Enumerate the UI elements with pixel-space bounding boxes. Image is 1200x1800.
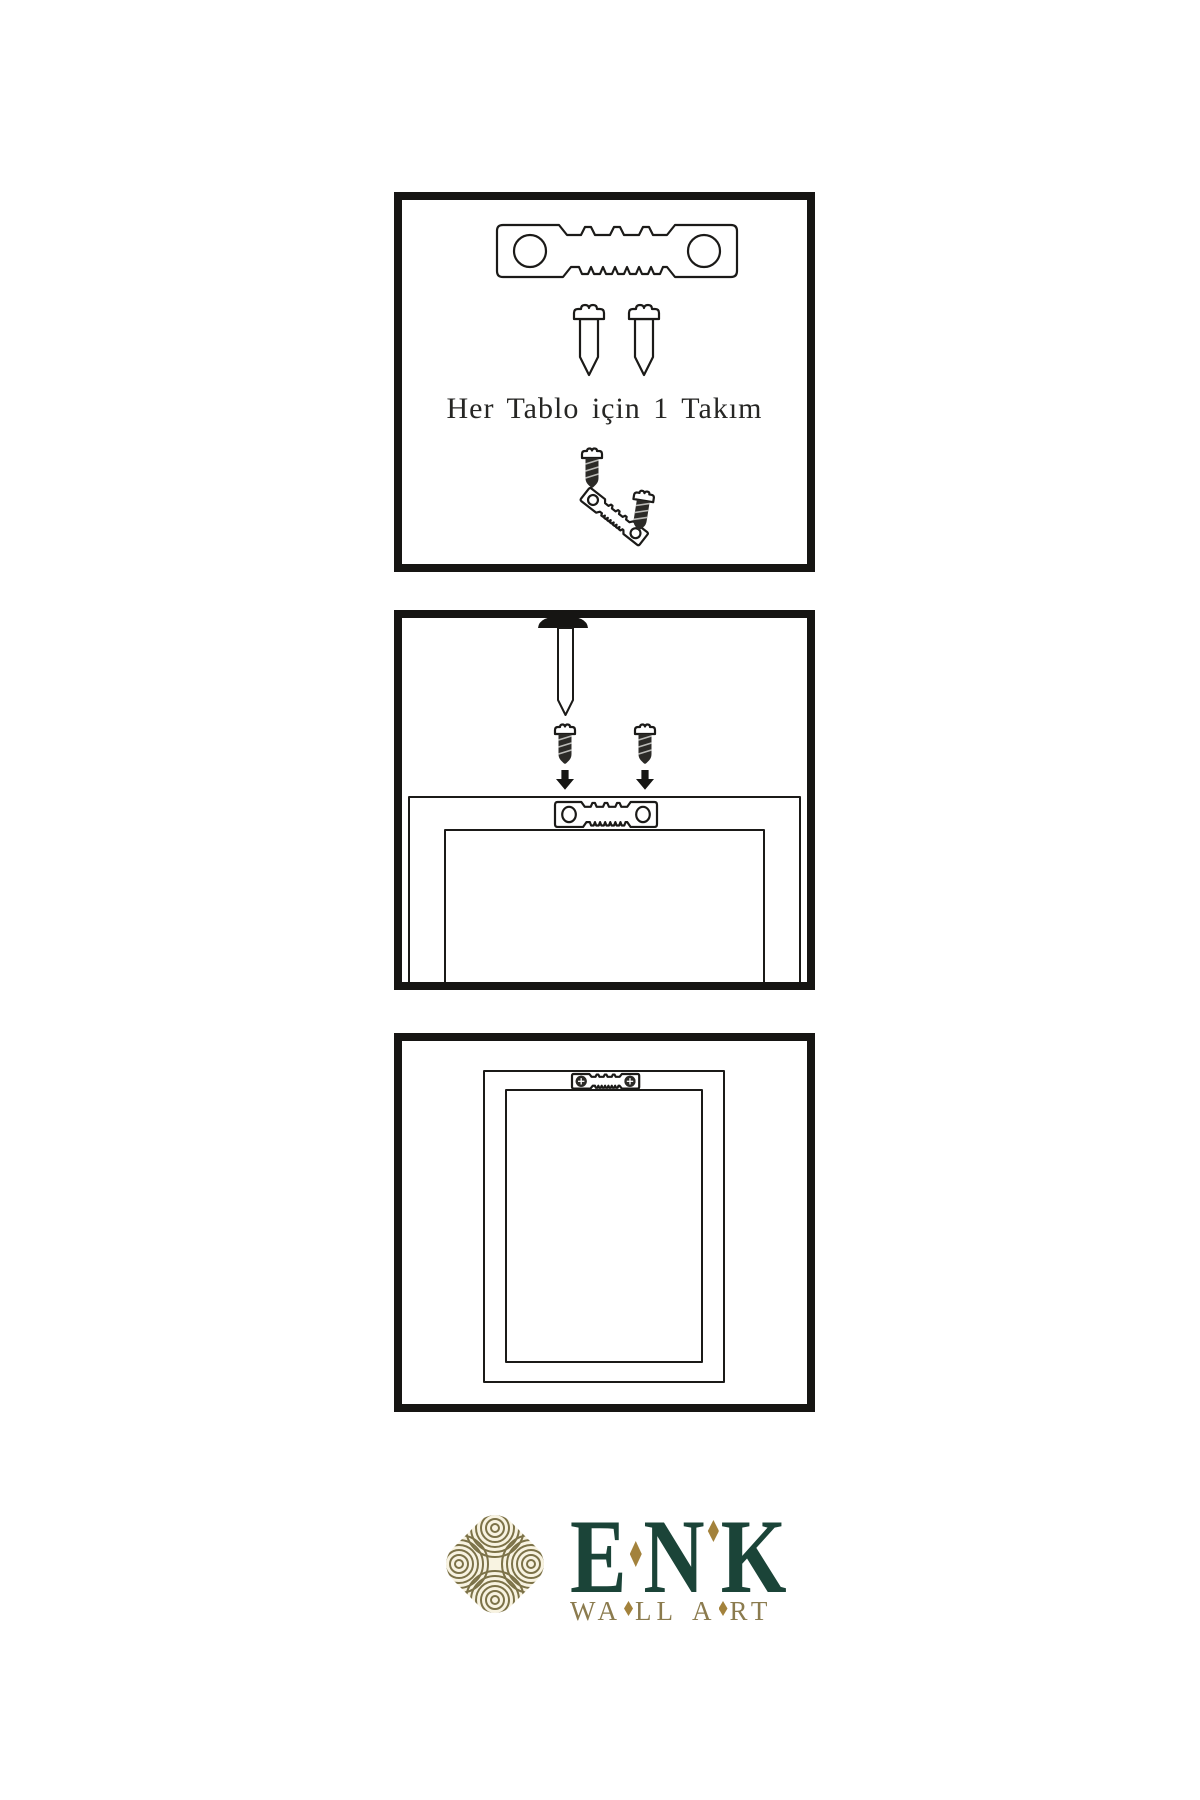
- sawtooth-hanger-icon: [555, 802, 657, 827]
- screw-icon: [574, 305, 604, 375]
- tagline-part: A: [692, 1596, 717, 1626]
- tagline-part: RT: [730, 1596, 773, 1626]
- panel1-caption: Her Tablo için 1 Takım: [394, 393, 815, 425]
- panel-step-2-mounting: [394, 610, 815, 990]
- diamond-icon: [719, 1601, 728, 1616]
- diamond-icon: [630, 1541, 642, 1567]
- tagline-part: LL: [635, 1596, 678, 1626]
- sawtooth-hanger-icon: [497, 225, 737, 277]
- instruction-sheet: Her Tablo için 1 Takım: [0, 0, 1200, 1800]
- screw-into-hanger-assembly: [580, 449, 655, 546]
- hung-frame-icon: [484, 1071, 724, 1382]
- nail-icon: [538, 616, 588, 715]
- brand-logo: ENK WALLART: [433, 1496, 803, 1646]
- brand-tagline: WALLART: [570, 1596, 772, 1627]
- arrow-down-icon: [556, 770, 574, 790]
- arrow-down-icon: [636, 770, 654, 790]
- diamond-icon: [708, 1520, 719, 1542]
- tagline-part: WA: [570, 1596, 622, 1626]
- brand-name: ENK: [570, 1504, 788, 1610]
- diamond-icon: [624, 1601, 633, 1616]
- panel-step-3-hung-frame: [394, 1033, 815, 1412]
- screw-icon: [635, 725, 655, 764]
- screw-icon: [629, 305, 659, 375]
- sawtooth-hanger-icon: [572, 1074, 639, 1089]
- panel-step-1-hardware: Her Tablo için 1 Takım: [394, 192, 815, 572]
- knot-logo-icon: [433, 1502, 557, 1626]
- screw-icon: [555, 725, 575, 764]
